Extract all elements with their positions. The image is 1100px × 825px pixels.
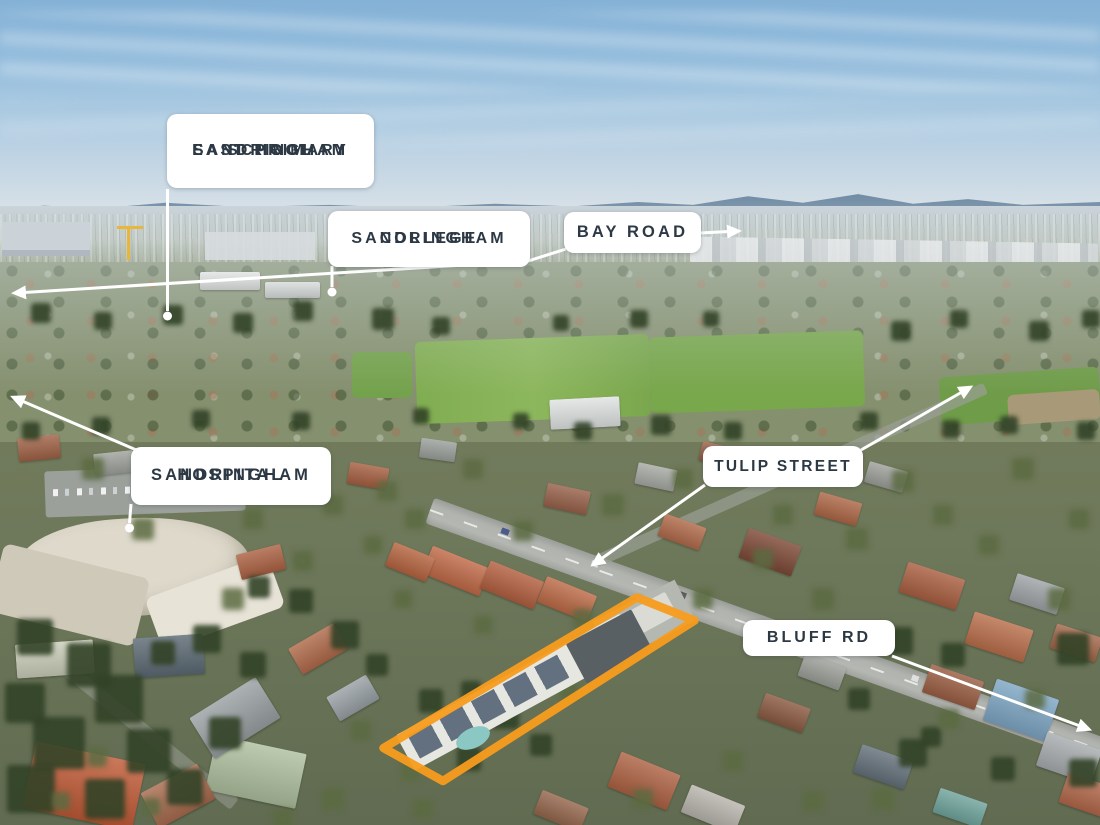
label-text: COLLEGE xyxy=(380,228,479,251)
label-text: TULIP STREET xyxy=(714,456,852,478)
annotation-overlay xyxy=(0,0,1100,825)
label-text: SCHOOL xyxy=(227,140,314,163)
leader-dot-hospital xyxy=(125,524,134,533)
leader-tulip-street-sw-arrow xyxy=(601,485,705,559)
label-bluff-rd: BLUFF RD xyxy=(743,620,895,656)
leader-tulip-street-ne-arrow xyxy=(861,392,962,450)
label-tulip-street: TULIP STREET xyxy=(703,446,863,487)
leader-bluff-rd-arrow xyxy=(892,656,1080,726)
leader-dot-college xyxy=(328,288,337,297)
label-text: BAY ROAD xyxy=(577,221,688,244)
property-boundary-outline xyxy=(384,598,695,782)
label-text: HOSPITAL xyxy=(177,464,284,487)
label-sandringham-hospital: SANDRINGHAM HOSPITAL xyxy=(131,447,331,505)
leader-hospital-down xyxy=(130,504,132,523)
label-text: BLUFF RD xyxy=(767,627,871,650)
leader-hospital-arrow xyxy=(22,401,141,452)
label-bay-road: BAY ROAD xyxy=(564,212,701,253)
leader-bay-road-east-arrow xyxy=(700,232,729,234)
label-sandringham-college: SANDRINGHAM COLLEGE xyxy=(328,211,530,267)
label-sandringham-east-primary-school: SANDRINGHAM EAST PRIMARY SCHOOL xyxy=(167,114,374,188)
aerial-photo: SANDRINGHAM EAST PRIMARY SCHOOL SANDRING… xyxy=(0,0,1100,825)
leader-dot-school xyxy=(163,312,172,321)
